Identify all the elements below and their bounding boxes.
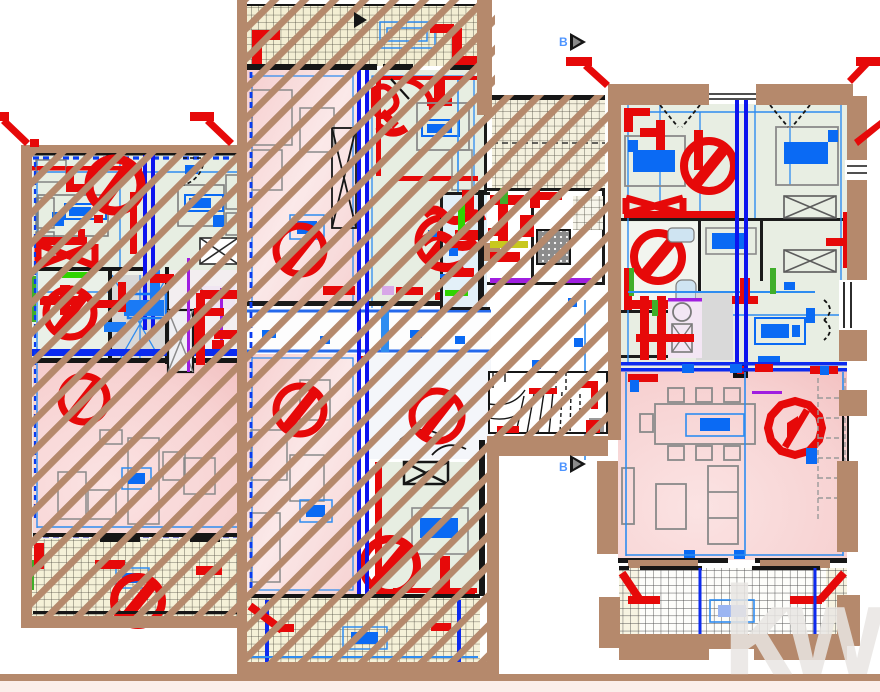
svg-text:B: B	[559, 35, 568, 49]
svg-text:B: B	[559, 460, 568, 474]
svg-text:kw: kw	[722, 560, 880, 692]
